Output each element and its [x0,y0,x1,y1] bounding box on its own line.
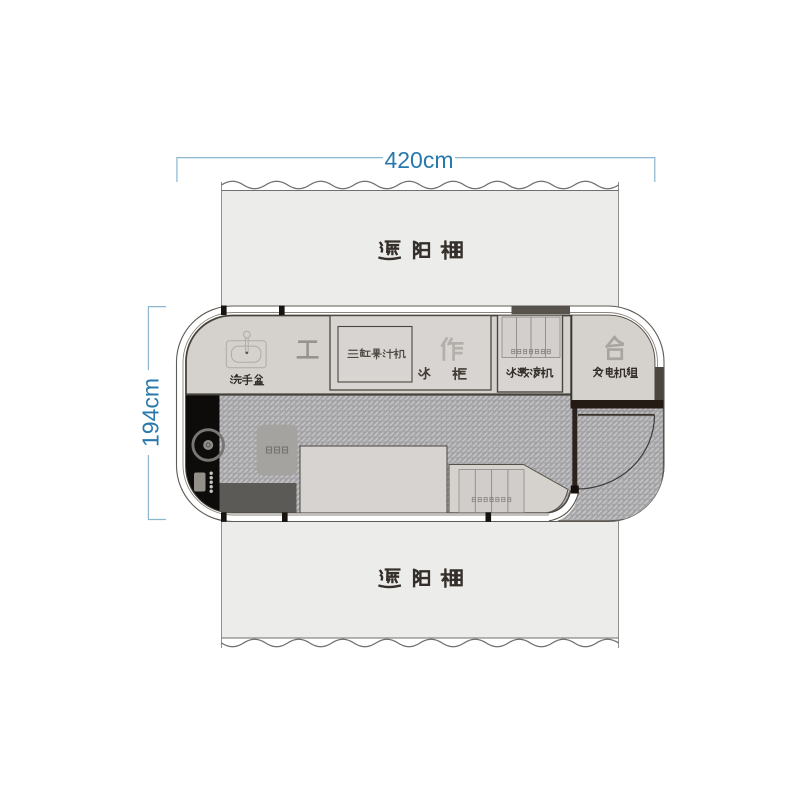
svg-text:420cm: 420cm [384,147,453,173]
svg-text:194cm: 194cm [138,378,164,447]
